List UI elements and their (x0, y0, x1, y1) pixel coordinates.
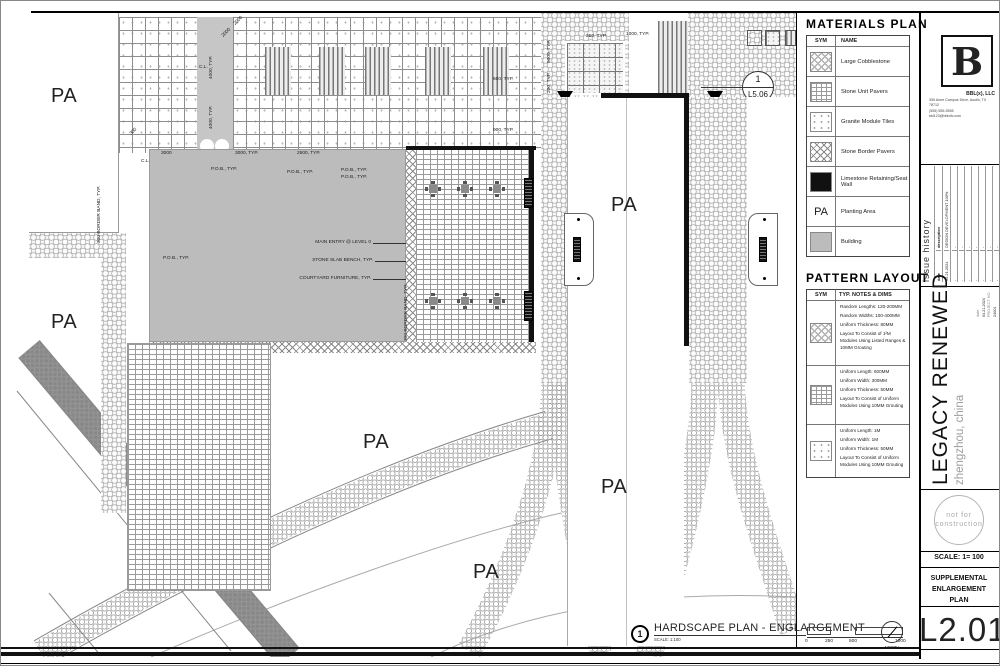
empty-cell: - (987, 166, 992, 250)
empty-cell: - (966, 166, 971, 250)
border-pavers-name: Stone Border Pavers (836, 137, 909, 166)
pattern-brick-swatch (810, 385, 832, 405)
note-line: Layout To Consist of 1²M Modules Using L… (840, 331, 907, 351)
scalebar-tick-500: 500 (849, 639, 857, 644)
dim-4000-a: 4000, TYP. (209, 56, 214, 79)
stone-unit-name: Stone Unit Pavers (836, 77, 909, 106)
page-bottom-edge (1, 663, 1000, 664)
materials-row-granite: Granite Module Tiles (807, 106, 909, 136)
stamp-line-1: not for (946, 511, 971, 520)
stripe-band-2 (319, 47, 345, 95)
pattern-row-brick: Uniform Length: 600MM Uniform Width: 300… (807, 365, 909, 424)
materials-sym-header: SYM (807, 36, 836, 46)
scalebar-tick-250: 250 (825, 639, 833, 644)
titleblock-divider-1 (919, 164, 999, 165)
firm-email: bbl123@bblxllc.com (929, 114, 995, 119)
stone-bench-leader (375, 261, 406, 262)
dim-3000-typ: 3000, TYP. (235, 151, 258, 156)
granite-name: Granite Module Tiles (836, 107, 909, 136)
pattern-brick-notes: Uniform Length: 600MM Uniform Width: 300… (836, 366, 909, 424)
cobblestone-symbol (807, 47, 836, 76)
pa-label-5: PA (473, 561, 499, 584)
issue-entry-desc: DESIGN DEVELOPMENT 100% (944, 166, 949, 250)
road-centerline (626, 97, 627, 646)
cl-label-1: C.L. (199, 65, 208, 70)
pattern-layout-table: SYM TYP. NOTES & DIMS Random Lengths: 12… (806, 289, 910, 478)
main-entry-label: MAIN ENTRY @ LEVEL 0 (241, 240, 371, 245)
materials-plan-title: MATERIALS PLAN (806, 17, 928, 31)
building-symbol (807, 227, 836, 256)
courtyard-table-5 (457, 293, 473, 309)
pattern-row-cobble: Random Lengths: 120-200MM Random Widths:… (807, 300, 909, 365)
pa-label-6: PA (601, 476, 627, 499)
granite-module-block (565, 41, 625, 95)
swatch-box-1 (747, 30, 762, 46)
planting-area-topleft: PA (29, 13, 119, 233)
bollard-dot-3 (763, 218, 766, 221)
sheet-bottom-line-2 (1, 652, 919, 656)
note-line: Uniform Length: 600MM (840, 369, 907, 376)
empty-cell: - (959, 250, 964, 282)
titleblock-divider-5 (919, 567, 999, 568)
granite-symbol (807, 107, 836, 136)
materials-row-stone-unit: Stone Unit Pavers (807, 76, 909, 106)
stamp-line-2: construction (935, 520, 982, 529)
courtyard-table-1 (425, 181, 441, 197)
bench-right (759, 237, 767, 262)
pa-label-4: PA (363, 431, 389, 454)
empty-cell: - (959, 166, 964, 250)
pattern-brick-symbol (807, 366, 836, 424)
road-leg-b2 (731, 381, 793, 631)
issue-empty-row: -- (958, 166, 965, 282)
bollard-dot-1 (577, 218, 580, 221)
courtyard-table-6 (489, 293, 505, 309)
sheet-top-border (31, 11, 999, 13)
swatch-box-2 (765, 30, 780, 46)
project-meta-rotated: date 04.21.2024 PROJECT NO. 24001 (976, 263, 998, 317)
cobble-road-b (689, 97, 747, 383)
courtyard-table-3 (489, 181, 505, 197)
note-line: Uniform Width: 300MM (840, 378, 907, 385)
not-for-construction-stamp: not for construction (934, 495, 984, 545)
project-location: zhengzhou, china (954, 289, 966, 485)
drawing-sheet: PA 1 L5.06 5600, TYP. 6000, TYP. (0, 0, 1000, 666)
issue-empty-row: -- (965, 166, 972, 282)
materials-row-limestone: Limestone Retaining/Seat Wall (807, 166, 909, 196)
note-line: Uniform Length: 1M (840, 428, 907, 435)
pattern-notes-header: TYP. NOTES & DIMS (836, 290, 909, 300)
pattern-module-notes: Uniform Length: 1M Uniform Width: 1M Uni… (836, 425, 909, 477)
empty-cell: - (973, 166, 978, 250)
note-line: Random Widths: 100-400MM (840, 313, 907, 320)
materials-row-border-pavers: Stone Border Pavers (807, 136, 909, 166)
materials-table: SYM NAME Large Cobblestone Stone Unit Pa… (806, 35, 910, 257)
stripe-band-4 (425, 47, 451, 95)
sheet-bottom-line-1 (1, 647, 919, 649)
stone-unit-swatch (810, 82, 832, 102)
callout-number: 1 (743, 72, 773, 88)
firm-logo-letter: B (951, 39, 983, 84)
pattern-module-symbol (807, 425, 836, 477)
pattern-layout-title: PATTERN LAYOUT (806, 271, 929, 285)
courtyard-table-2 (457, 181, 473, 197)
courtyard-pavers (416, 149, 529, 342)
building-swatch (810, 232, 832, 252)
road-leg-a1 (469, 379, 554, 651)
titleblock-divider-4 (919, 551, 999, 552)
empty-cell: - (952, 166, 957, 250)
stripe-band-5 (483, 47, 509, 95)
scalebar-box-1 (807, 627, 831, 635)
pattern-cobble-notes: Random Lengths: 120-200MM Random Widths:… (836, 301, 909, 365)
issue-empty-row: -- (951, 166, 958, 282)
materials-header-row: SYM NAME (807, 36, 909, 46)
cobblestone-name: Large Cobblestone (836, 47, 909, 76)
sheet-number: L2.01 (919, 611, 1000, 649)
pa-label-1: PA (51, 85, 77, 108)
courtyard-furniture-label: COURTYARD FURNITURE, TYP. (241, 276, 371, 281)
issue-history-title: issue history (921, 166, 934, 282)
note-line: Layout To Consist of Uniform Modules Usi… (840, 455, 907, 468)
pattern-sym-header: SYM (807, 290, 836, 300)
cl-label-2: C.L. (141, 159, 150, 164)
pob-label-1: P.O.B., TYP. (211, 167, 237, 172)
plan-drawing-area: PA 1 L5.06 5600, TYP. 6000, TYP. (1, 1, 796, 657)
limestone-symbol (807, 167, 836, 196)
project-number: 24001 (993, 263, 999, 317)
cl-walkway-band (197, 17, 233, 153)
bollard-dot-2 (577, 277, 580, 280)
courtyard-wall-top (406, 146, 536, 150)
dim-5000-typ: 5000, TYP. (547, 40, 552, 63)
issue-history-entry: 04.21.2024 DESIGN DEVELOPMENT 100% (943, 166, 951, 282)
note-line: Random Lengths: 120-200MM (840, 304, 907, 311)
drawing-number-bubble: 1 (631, 625, 649, 643)
dim-4000-b: 4000, TYP. (209, 106, 214, 129)
north-label: NORTH (879, 645, 905, 650)
titleblock-divider-7 (919, 649, 999, 650)
note-line: Uniform Thickness: 80MM (840, 322, 907, 329)
note-line: Layout To Consist of Uniform Modules Usi… (840, 396, 907, 409)
stone-unit-symbol (807, 77, 836, 106)
planting-symbol: PA (807, 197, 836, 226)
border-band-label-left: 300 BORDER BAND, TYP. (97, 186, 102, 243)
firm-contact: 355 Anne Campus Drive, Austin, TX 78712 … (929, 98, 995, 120)
dim-600-typ: 600, TYP. (493, 77, 514, 82)
note-line: Uniform Thickness: 50MM (840, 446, 907, 453)
dim-2500-typ: 2500, TYP. (297, 151, 320, 156)
bollard-dot-4 (763, 277, 766, 280)
dim-200-typ: 200, TYP. (547, 72, 552, 93)
pob-label-3: P.O.B., TYP. (341, 168, 367, 173)
issue-history-header: date description (934, 166, 943, 282)
limestone-name: Limestone Retaining/Seat Wall (836, 167, 909, 196)
stripe-band-1 (265, 47, 291, 95)
pattern-cobble-symbol (807, 301, 836, 365)
border-band-label-right: 300 BORDER BAND, TYP. (404, 284, 409, 341)
courtyard-furniture-leader (373, 279, 406, 280)
titleblock-divider-6 (919, 606, 999, 607)
pa-label-3: PA (611, 194, 637, 217)
swatch-box-3 (785, 30, 796, 46)
empty-cell: - (994, 166, 999, 250)
retaining-wall-top (601, 93, 689, 98)
dim-1000-typ: 1000, TYP. (626, 32, 649, 37)
scalebar-tick-0: 0 (805, 639, 808, 644)
cobblestone-swatch (810, 52, 832, 72)
titleblock-divider-3 (919, 489, 999, 490)
materials-row-cobblestone: Large Cobblestone (807, 46, 909, 76)
planting-name: Planting Area (836, 197, 909, 226)
firm-name: BBL(x), LLC (929, 91, 995, 97)
firm-address: 355 Anne Campus Drive, Austin, TX 78712 (929, 98, 995, 109)
pattern-module-swatch (810, 441, 832, 461)
project-name-rotated: LEGACY RENEWED zhengzhou, china (929, 289, 975, 485)
pattern-cobble-swatch (810, 323, 832, 343)
materials-row-planting: PA Planting Area (807, 196, 909, 226)
dim-3000: 3000 (161, 151, 172, 156)
drawing-title: HARDSCAPE PLAN - ENGLARGEMENT (654, 622, 865, 634)
sheet-title: SUPPLEMENTAL ENLARGEMENT PLAN (927, 573, 991, 607)
pattern-row-module: Uniform Length: 1M Uniform Width: 1M Uni… (807, 424, 909, 477)
pob-label-5: P.O.B., TYP. (163, 256, 189, 261)
main-entry-leader (373, 243, 406, 244)
cobble-band-vertical-left (101, 233, 126, 513)
pattern-header-row: SYM TYP. NOTES & DIMS (807, 290, 909, 300)
empty-cell: - (952, 250, 957, 282)
stone-slab-bench-1 (524, 178, 533, 208)
limestone-swatch (810, 172, 832, 192)
pa-label-2: PA (51, 311, 77, 334)
granite-swatch (810, 112, 832, 132)
drawing-title-underline (654, 635, 806, 636)
building-mass (149, 149, 406, 342)
north-arrow-icon (881, 621, 903, 643)
firm-logo-box: B (941, 35, 993, 87)
north-needle (888, 626, 898, 637)
stone-slab-bench-2 (524, 291, 533, 321)
materials-name-header: NAME (836, 36, 909, 46)
retaining-wall-vertical (684, 93, 689, 346)
drawing-scale: SCALE: 1:100 (654, 637, 681, 642)
dim-900-typ: 900, TYP. (493, 128, 514, 133)
stripe-band-3 (365, 47, 391, 95)
dim-250-typ: 250, TYP. (586, 34, 607, 39)
stone-bench-label: STONE SLAB BENCH, TYP. (241, 258, 373, 263)
paver-plaza (127, 343, 271, 591)
sheet-scale: SCALE: 1= 100 (919, 554, 999, 561)
border-pavers-symbol (807, 137, 836, 166)
issue-desc-col: description (936, 166, 941, 250)
pob-label-2: P.O.B., TYP. (287, 170, 313, 175)
callout-leader-line (701, 87, 742, 88)
plan-right-border (796, 11, 797, 647)
titleblock-left-border (919, 11, 921, 659)
courtyard-table-4 (425, 293, 441, 309)
stripe-band-top-right (658, 21, 688, 95)
note-line: Uniform Width: 1M (840, 437, 907, 444)
building-name: Building (836, 227, 909, 256)
pob-label-4: P.O.B., TYP. (341, 175, 367, 180)
empty-cell: - (966, 250, 971, 282)
materials-row-building: Building (807, 226, 909, 256)
bench-left (573, 237, 581, 262)
border-pavers-swatch (810, 142, 832, 162)
note-line: Uniform Thickness: 50MM (840, 387, 907, 394)
empty-cell: - (980, 166, 985, 250)
project-name: LEGACY RENEWED (929, 289, 953, 485)
